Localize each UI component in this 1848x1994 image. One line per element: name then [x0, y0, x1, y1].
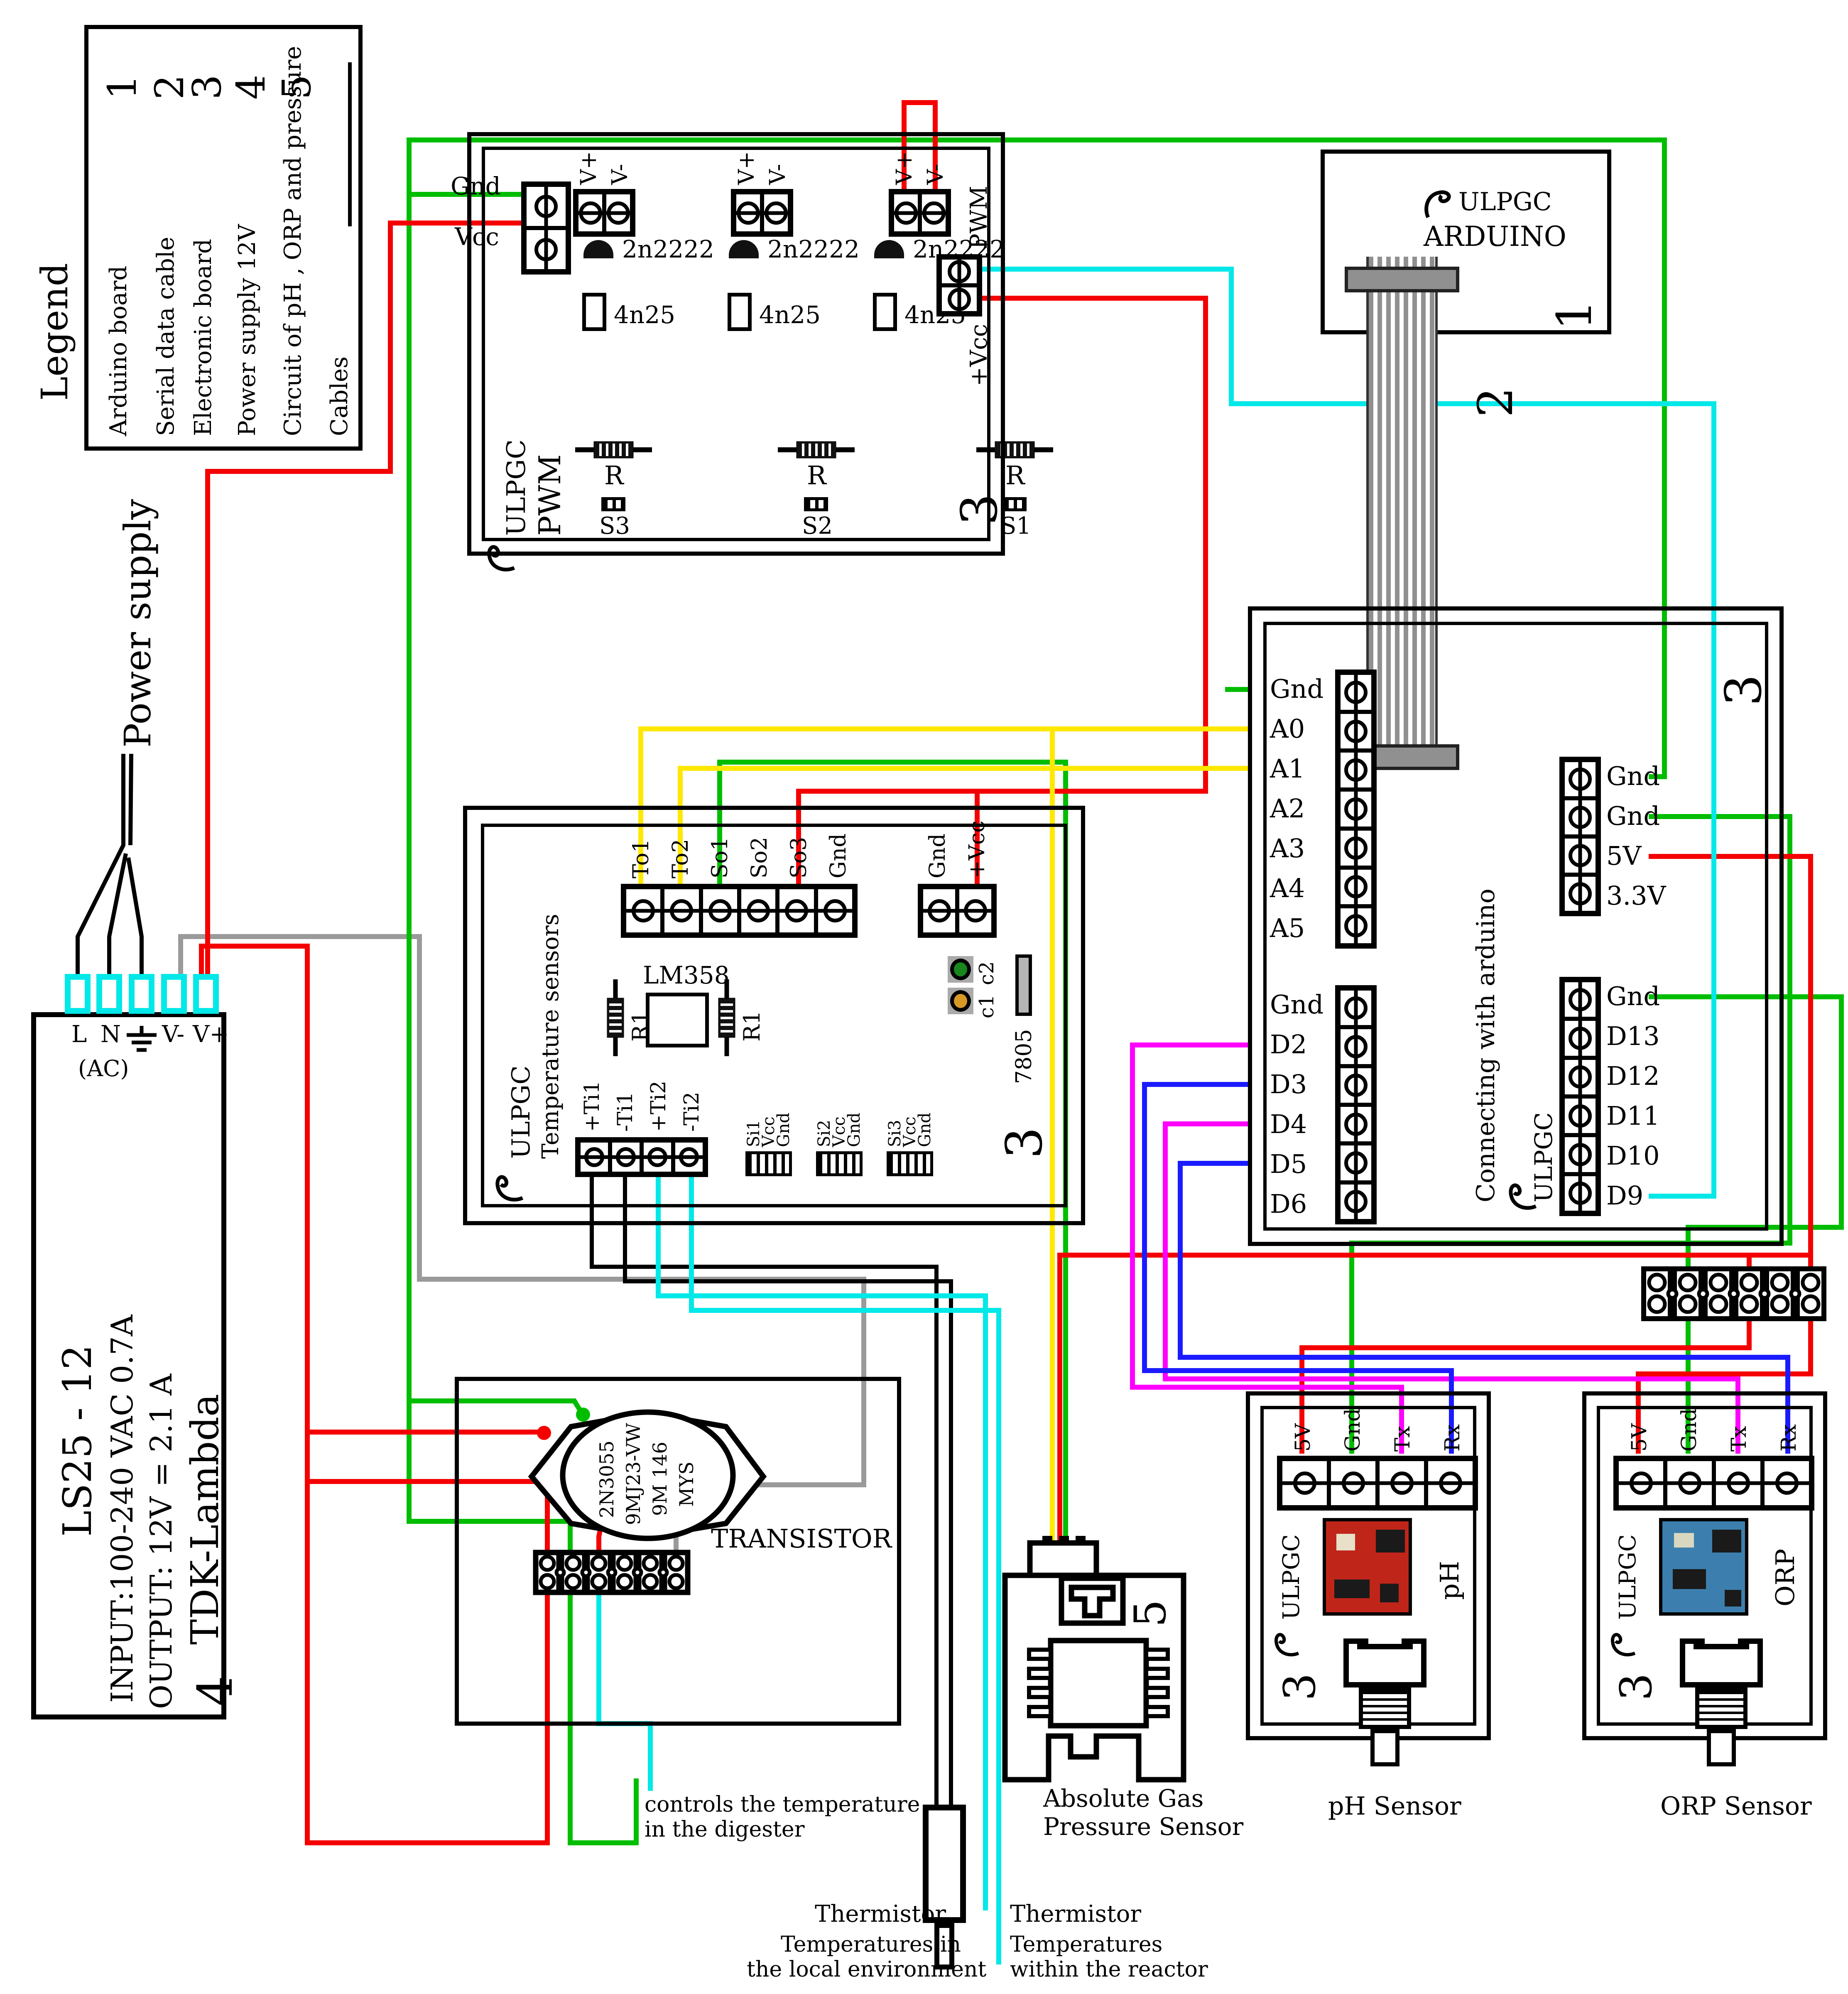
orp-bnc-plug — [1707, 1729, 1736, 1766]
conn-left-analog-block — [1335, 670, 1377, 949]
pwm-out-terminal — [936, 254, 982, 316]
opto-4n25-icon — [582, 293, 606, 331]
conn-lt-5: A4 — [1270, 875, 1305, 902]
pressure-sensor-body — [1005, 1536, 1184, 1780]
conn-lb-2: D3 — [1270, 1071, 1307, 1098]
temp-top-2: So1 — [709, 837, 731, 878]
wiring-diagram: Legend Arduino board 1 Serial data cable… — [0, 0, 1848, 1994]
ph-brand: ULPGC — [1280, 1534, 1303, 1620]
legend-num-4: 4 — [232, 75, 271, 100]
temp-si1-2: Gnd — [775, 1113, 792, 1147]
ph-board-ref: 3 — [1278, 1673, 1322, 1701]
temp-pwr-0: Gnd — [927, 834, 949, 878]
pwm-brand: ULPGC — [503, 439, 529, 536]
psu-l-label: L — [71, 1023, 87, 1047]
temp-c2-label: c2 — [977, 961, 997, 985]
transistor-marking-2: 9MJ23-VW — [624, 1423, 643, 1525]
digester-note-1: controls the temperature — [645, 1793, 920, 1816]
ph-term-rx: Rx — [1442, 1424, 1463, 1452]
conn-lb-0: Gnd — [1270, 991, 1324, 1018]
pwm-name: PWM — [535, 454, 565, 536]
thermistor1-note-2: the local environment — [747, 1958, 986, 1981]
orp-bnc-thread — [1695, 1687, 1748, 1729]
ph-term-gnd: Gnd — [1342, 1408, 1363, 1452]
ph-bnc-bracket — [1343, 1638, 1426, 1687]
pwm-gnd-vcc-terminal — [521, 181, 571, 275]
thermistor1-title: Thermistor — [815, 1902, 946, 1927]
ph-bnc-plug — [1370, 1729, 1399, 1766]
orp-term-tx: Tx — [1728, 1426, 1749, 1452]
opto-4n25-icon — [728, 293, 752, 331]
pwm-s2-label: S2 — [802, 514, 833, 539]
psu-ref: 4 — [192, 1676, 240, 1706]
temp-top-1: To2 — [670, 839, 691, 878]
conn-lb-3: D4 — [1270, 1111, 1307, 1138]
conn-lt-1: A0 — [1270, 715, 1305, 742]
pwm-vminus-label-3: V- — [925, 164, 946, 185]
pwm-vplus-label-2: V+ — [736, 151, 757, 185]
pwm-out-label: PWM — [968, 186, 991, 249]
thermistor2-note-1: Temperatures — [1010, 1933, 1162, 1956]
arduino-ref: 1 — [1551, 300, 1599, 330]
orp-term-rx: Rx — [1778, 1424, 1799, 1452]
conn-left-digital-block — [1335, 985, 1377, 1224]
right-connector-strip — [1644, 1269, 1824, 1319]
conn-rb-4: D10 — [1606, 1142, 1660, 1169]
s2-connector-icon — [804, 497, 828, 511]
orp-sensor-label: ORP Sensor — [1660, 1793, 1812, 1820]
thermistor2-title: Thermistor — [1010, 1902, 1141, 1927]
psu-cable-fork — [78, 754, 142, 974]
psu-output: OUTPUT: 12V = 2.1 A — [146, 1374, 176, 1709]
conn-lt-2: A1 — [1270, 755, 1305, 782]
capacitor-c2-icon — [950, 959, 971, 980]
conn-lt-3: A2 — [1270, 795, 1305, 822]
temp-ti-2: +Ti2 — [648, 1081, 669, 1132]
ribbon-connector-bar — [1345, 267, 1459, 292]
temp-ref: 3 — [1000, 1127, 1050, 1159]
pwm-vminus-label-1: V- — [609, 164, 631, 185]
legend-item-5: Circuit of pH , ORP and pressure — [282, 46, 305, 436]
conn-rt-2: 5V — [1606, 842, 1641, 869]
psu-terminal-vplus — [193, 974, 219, 1014]
si2-connector-icon — [816, 1151, 863, 1176]
psu-input: INPUT:100-240 VAC 0.7A — [107, 1315, 137, 1703]
orp-brand: ULPGC — [1616, 1534, 1639, 1620]
temp-pwr-1: +Vcc — [966, 821, 988, 878]
temp-ti-0: +Ti1 — [581, 1081, 602, 1132]
regulator-7805-icon — [1015, 954, 1032, 1016]
digester-note-2: in the digester — [645, 1818, 805, 1841]
temp-si2-2: Gnd — [846, 1113, 863, 1147]
pwm-r-label-3: R — [1005, 462, 1025, 489]
legend-num-2: 2 — [150, 75, 190, 100]
temp-reg-label: 7805 — [1013, 1029, 1035, 1084]
conn-rt-3: 3.3V — [1606, 882, 1666, 909]
temp-r1-label-2: R1 — [741, 1010, 763, 1042]
psu-model: LS25 - 12 — [58, 1345, 98, 1537]
pwm-4n25-label-2: 4n25 — [759, 302, 821, 328]
pwm-ref: 3 — [955, 494, 1005, 525]
transistor-marking-4: MYS — [677, 1462, 696, 1507]
pwm-2n2222-label-2: 2n2222 — [767, 237, 860, 262]
legend-num-3: 3 — [188, 75, 227, 100]
legend-item-4: Power supply 12V — [236, 224, 259, 436]
screw-icon — [534, 238, 558, 261]
arduino-brand: ULPGC — [1458, 189, 1552, 215]
orp-pcb-photo — [1659, 1518, 1748, 1616]
orp-bnc-bracket — [1680, 1638, 1763, 1687]
psu-terminal-vminus — [161, 974, 187, 1014]
legend-item-6: Cables — [328, 356, 351, 436]
legend-title: Legend — [37, 263, 73, 401]
orp-term-gnd: Gnd — [1679, 1408, 1699, 1452]
capacitor-c1-icon — [950, 990, 971, 1012]
transistor-part: 2N3055 — [597, 1440, 616, 1518]
pwm-output-pair-2 — [731, 189, 793, 237]
pwm-vplus-label-3: V+ — [894, 151, 915, 185]
psu-vminus-label: V- — [162, 1023, 184, 1047]
pressure-label-1: Absolute Gas — [1043, 1786, 1203, 1811]
legend-num-5: 5 — [277, 75, 317, 100]
conn-rb-2: D12 — [1606, 1062, 1660, 1089]
conn-lb-4: D5 — [1270, 1150, 1307, 1177]
orp-term-5v: 5V — [1629, 1423, 1649, 1452]
temp-top-terminal-block — [621, 884, 858, 938]
transistor-label: TRANSISTOR — [711, 1525, 892, 1552]
conn-rb-0: Gnd — [1606, 983, 1660, 1010]
serial-cable-ref: 2 — [1472, 387, 1520, 417]
pwm-4n25-label-1: 4n25 — [614, 302, 675, 328]
temp-ti-1: -Ti1 — [615, 1092, 635, 1132]
pwm-pvcc-label: +Vcc — [968, 324, 991, 386]
thermistor2-note-2: within the reactor — [1010, 1958, 1208, 1981]
conn-rb-5: D9 — [1606, 1182, 1643, 1209]
conn-rb-1: D13 — [1606, 1023, 1660, 1050]
si1-connector-icon — [745, 1151, 792, 1176]
conn-lt-0: Gnd — [1270, 675, 1324, 702]
temp-si3-2: Gnd — [917, 1113, 933, 1147]
conn-rt-0: Gnd — [1606, 763, 1660, 790]
psu-terminal-earth — [129, 974, 154, 1014]
ph-terminal-block — [1277, 1456, 1478, 1511]
psu-ac-label: (AC) — [78, 1057, 129, 1081]
ph-sensor-label: pH Sensor — [1328, 1793, 1461, 1820]
pressure-label-2: Pressure Sensor — [1043, 1814, 1243, 1839]
conn-rb-3: D11 — [1606, 1102, 1660, 1129]
conn-lt-4: A3 — [1270, 835, 1305, 862]
psu-brand: TDK-Lambda — [186, 1394, 224, 1645]
temp-top-0: To1 — [630, 839, 652, 878]
temp-top-5: Gnd — [828, 834, 849, 878]
legend-item-2: Serial data cable — [154, 237, 178, 436]
si3-connector-icon — [887, 1151, 933, 1176]
psu-vplus-label: V+ — [193, 1023, 229, 1047]
ph-pcb-photo — [1323, 1518, 1412, 1616]
temp-ti-terminal-block — [575, 1137, 708, 1177]
temp-top-4: So3 — [788, 837, 810, 878]
transistor-marking-3: 9M 146 — [650, 1442, 669, 1516]
connecting-brand: ULPGC — [1532, 1112, 1556, 1202]
temp-ti-3: -Ti2 — [681, 1092, 702, 1132]
conn-lb-5: D6 — [1270, 1190, 1307, 1217]
s3-connector-icon — [601, 497, 625, 511]
arduino-name: ARDUINO — [1424, 222, 1566, 251]
pwm-s3-label: S3 — [599, 514, 630, 539]
orp-terminal-block — [1613, 1456, 1814, 1511]
connecting-ref: 3 — [1719, 674, 1769, 706]
conn-rt-1: Gnd — [1606, 802, 1660, 829]
pwm-output-pair-1 — [573, 189, 635, 237]
psu-terminal-l — [65, 974, 91, 1014]
temp-ic-label: LM358 — [643, 963, 730, 988]
power-supply-label: Power supply — [120, 499, 156, 748]
temp-name: Temperature sensors — [539, 914, 562, 1159]
legend-num-1: 1 — [103, 75, 142, 100]
legend-item-3: Electronic board — [192, 239, 215, 436]
conn-right-power-block — [1559, 757, 1601, 916]
orp-name: ORP — [1772, 1549, 1798, 1606]
pwm-r-label-2: R — [807, 462, 826, 489]
pwm-vplus-label-1: V+ — [578, 151, 600, 185]
conn-lt-6: A5 — [1270, 915, 1305, 942]
pwm-output-pair-3 — [889, 189, 951, 237]
psu-n-label: N — [100, 1023, 121, 1047]
thermistor1-note-1: Temperatures in — [781, 1933, 961, 1956]
conn-lb-1: D2 — [1270, 1031, 1307, 1058]
legend-item-1: Arduino board — [107, 266, 130, 436]
connecting-title: Connecting with arduino — [1473, 888, 1498, 1202]
pwm-r-label-1: R — [604, 462, 624, 489]
temp-power-terminal-block — [918, 884, 997, 938]
temp-brand: ULPGC — [509, 1065, 534, 1159]
ph-term-5v: 5V — [1292, 1423, 1313, 1452]
conn-right-digital-block — [1559, 977, 1601, 1216]
legend-cable-line — [348, 62, 352, 226]
temp-c1-label: c1 — [977, 995, 997, 1018]
orp-board-ref: 3 — [1615, 1673, 1658, 1701]
pwm-vminus-label-2: V- — [767, 164, 789, 185]
temp-top-3: So2 — [749, 837, 770, 878]
pwm-2n2222-label-1: 2n2222 — [622, 237, 714, 262]
lm358-ic-icon — [646, 993, 709, 1047]
temp-r1-label-1: R1 — [630, 1010, 652, 1042]
ph-name: pH — [1437, 1561, 1463, 1600]
psu-terminal-n — [96, 974, 122, 1014]
ph-term-tx: Tx — [1392, 1426, 1413, 1452]
opto-4n25-icon — [873, 293, 897, 331]
pwm-gnd-label: Gnd — [451, 174, 501, 199]
ph-bnc-thread — [1359, 1687, 1411, 1729]
pwm-vcc-label: Vcc — [455, 224, 499, 250]
pressure-ref: 5 — [1129, 1599, 1172, 1627]
